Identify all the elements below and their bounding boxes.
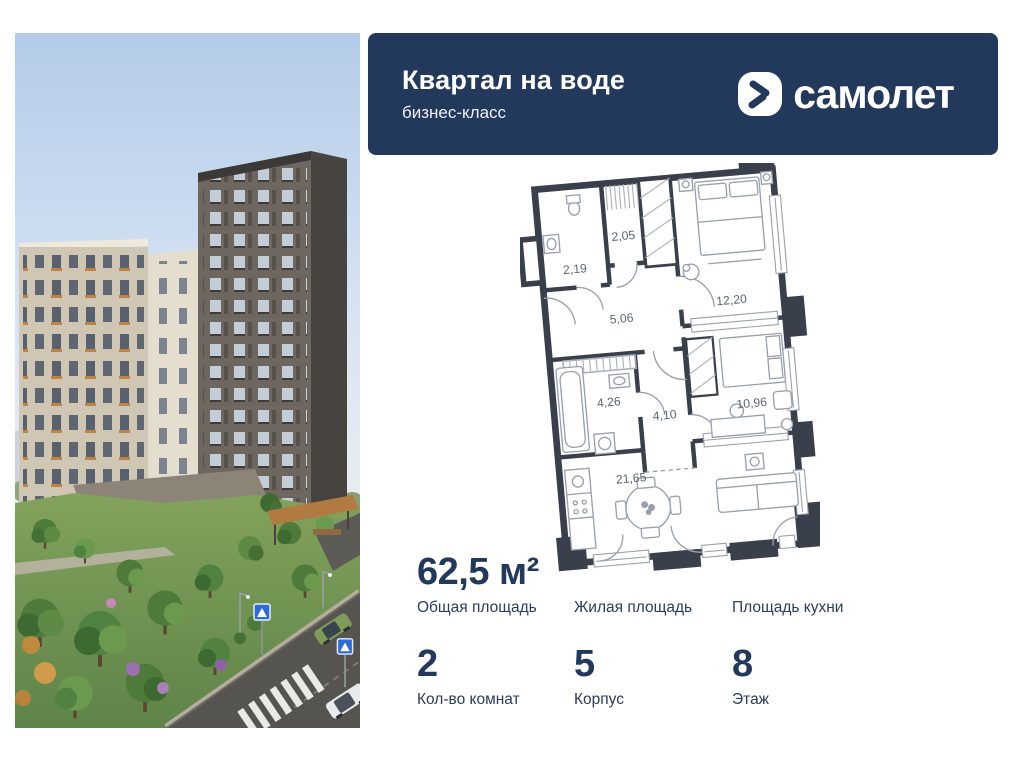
building-render-illustration bbox=[15, 33, 360, 728]
listing-card: Квартал на воде бизнес-класс самолет bbox=[0, 0, 1014, 768]
project-title: Квартал на воде bbox=[402, 65, 625, 96]
samolet-logo: самолет bbox=[737, 71, 954, 118]
room-label-bathroom-guest: 2,19 bbox=[562, 261, 587, 277]
room-label-bedroom-1: 12,20 bbox=[716, 292, 748, 309]
room-label-hall: 4,10 bbox=[652, 407, 677, 423]
photo-render bbox=[15, 33, 360, 728]
room-label-hallway: 5,06 bbox=[609, 311, 634, 327]
stat-value: 8 bbox=[732, 642, 912, 688]
stats-grid: 62,5 м² Общая площадь Жилая площадь Площ… bbox=[417, 550, 912, 734]
stat-kitchen-area: Площадь кухни bbox=[732, 550, 912, 642]
logo-arrow-icon bbox=[737, 71, 783, 117]
room-label-bedroom-2: 10,96 bbox=[736, 395, 768, 412]
stat-total-area: 62,5 м² Общая площадь bbox=[417, 550, 574, 642]
stat-label: Жилая площадь bbox=[574, 598, 732, 618]
stat-label: Площадь кухни bbox=[732, 598, 912, 618]
stat-label: Корпус bbox=[574, 690, 732, 710]
floor-plan-drawing: 2,19 2,05 5,06 12,20 4,26 4,10 10,96 21,… bbox=[520, 163, 820, 602]
stat-value bbox=[574, 550, 732, 596]
stat-building: 5 Корпус bbox=[574, 642, 732, 734]
stat-label: Этаж bbox=[732, 690, 912, 710]
stat-label: Кол-во комнат bbox=[417, 690, 574, 710]
room-label-wardrobe: 2,05 bbox=[611, 228, 636, 244]
room-label-bathroom-main: 4,26 bbox=[596, 394, 621, 410]
stat-value: 2 bbox=[417, 642, 574, 688]
project-banner: Квартал на воде бизнес-класс самолет bbox=[368, 33, 998, 155]
logo-text: самолет bbox=[793, 71, 954, 118]
stat-value: 5 bbox=[574, 642, 732, 688]
stat-living-area: Жилая площадь bbox=[574, 550, 732, 642]
stat-value bbox=[732, 550, 912, 596]
stat-floor: 8 Этаж bbox=[732, 642, 912, 734]
room-label-kitchen-living: 21,65 bbox=[615, 470, 647, 487]
stat-label: Общая площадь bbox=[417, 598, 574, 618]
stat-rooms: 2 Кол-во комнат bbox=[417, 642, 574, 734]
project-class: бизнес-класс bbox=[402, 103, 625, 123]
project-heading: Квартал на воде бизнес-класс bbox=[402, 65, 625, 123]
floor-plan: 2,19 2,05 5,06 12,20 4,26 4,10 10,96 21,… bbox=[520, 163, 820, 602]
stat-value: 62,5 м² bbox=[417, 550, 574, 596]
